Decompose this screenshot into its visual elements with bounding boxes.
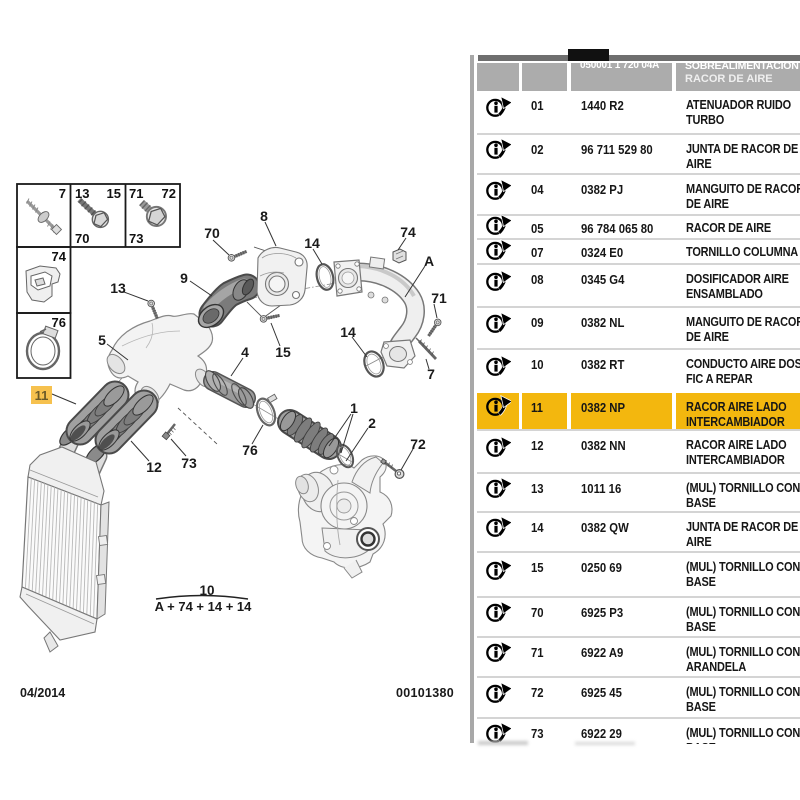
svg-text:13: 13 [110, 280, 126, 296]
svg-text:74: 74 [52, 249, 67, 264]
svg-text:4: 4 [241, 344, 249, 360]
svg-text:14: 14 [304, 235, 320, 251]
svg-text:5: 5 [98, 332, 106, 348]
svg-text:15: 15 [275, 344, 291, 360]
svg-text:7: 7 [59, 186, 66, 201]
svg-text:73: 73 [181, 455, 197, 471]
svg-text:A + 74 + 14 + 14: A + 74 + 14 + 14 [155, 599, 253, 614]
svg-text:04/2014: 04/2014 [20, 686, 65, 700]
svg-text:7: 7 [427, 366, 435, 382]
svg-text:11: 11 [35, 388, 49, 403]
svg-text:1: 1 [350, 400, 358, 416]
svg-text:8: 8 [260, 208, 268, 224]
svg-text:72: 72 [162, 186, 176, 201]
svg-text:71: 71 [431, 290, 447, 306]
svg-text:13: 13 [75, 186, 89, 201]
svg-text:73: 73 [129, 231, 143, 246]
svg-text:9: 9 [180, 270, 188, 286]
svg-text:14: 14 [340, 324, 356, 340]
svg-text:70: 70 [75, 231, 89, 246]
svg-text:74: 74 [400, 224, 416, 240]
svg-text:A: A [424, 253, 434, 269]
svg-text:15: 15 [107, 186, 121, 201]
svg-text:12: 12 [146, 459, 162, 475]
svg-text:70: 70 [204, 225, 220, 241]
svg-text:76: 76 [242, 442, 258, 458]
svg-text:76: 76 [52, 315, 66, 330]
svg-text:72: 72 [410, 436, 426, 452]
svg-text:71: 71 [129, 186, 143, 201]
svg-text:2: 2 [368, 415, 376, 431]
svg-text:00101380: 00101380 [396, 686, 454, 700]
